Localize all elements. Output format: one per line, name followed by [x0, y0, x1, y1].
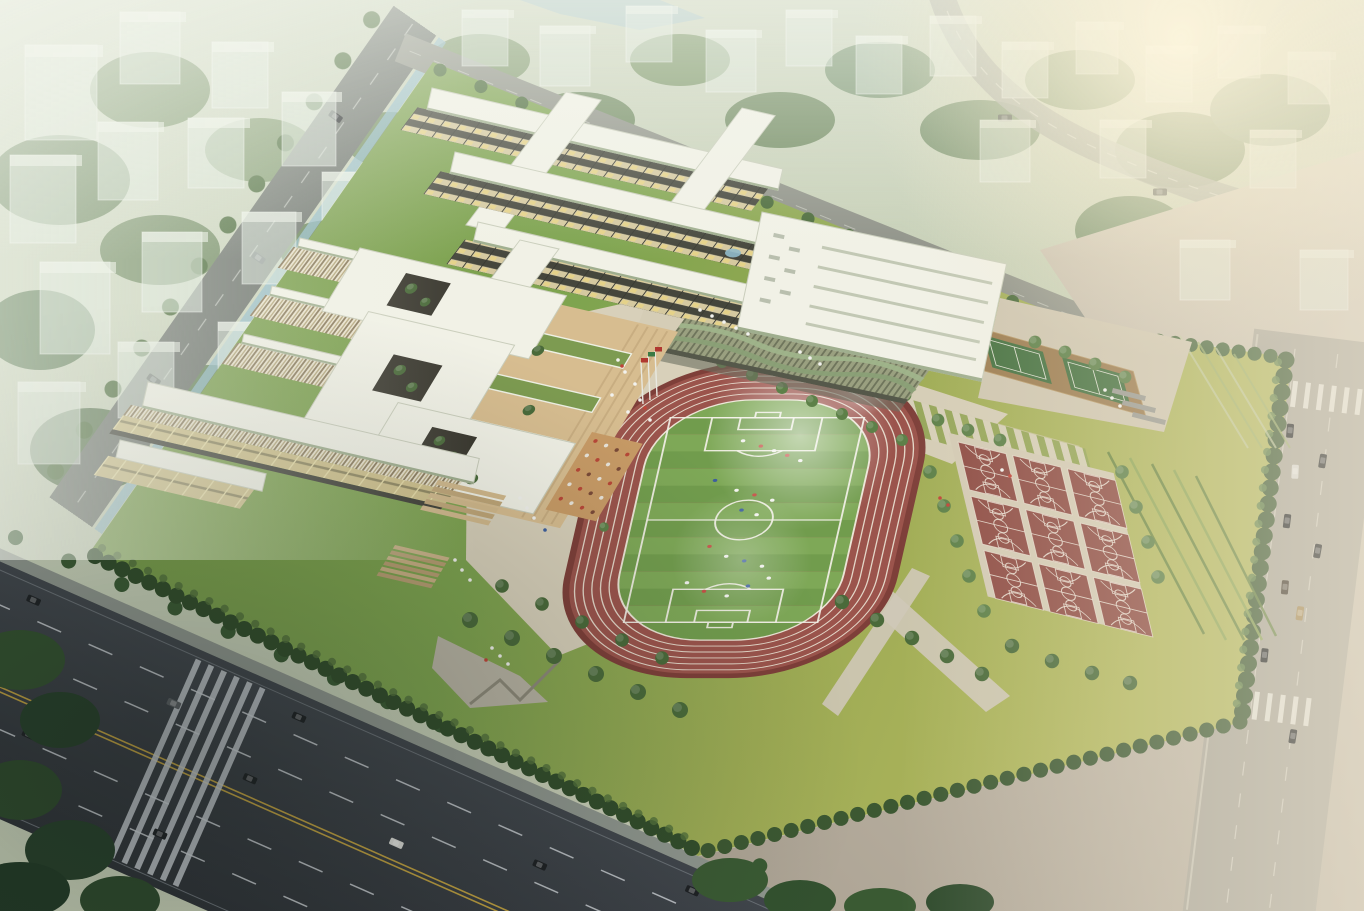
campus-aerial-scene: [0, 0, 1364, 911]
architectural-rendering-canvas: [0, 0, 1364, 911]
